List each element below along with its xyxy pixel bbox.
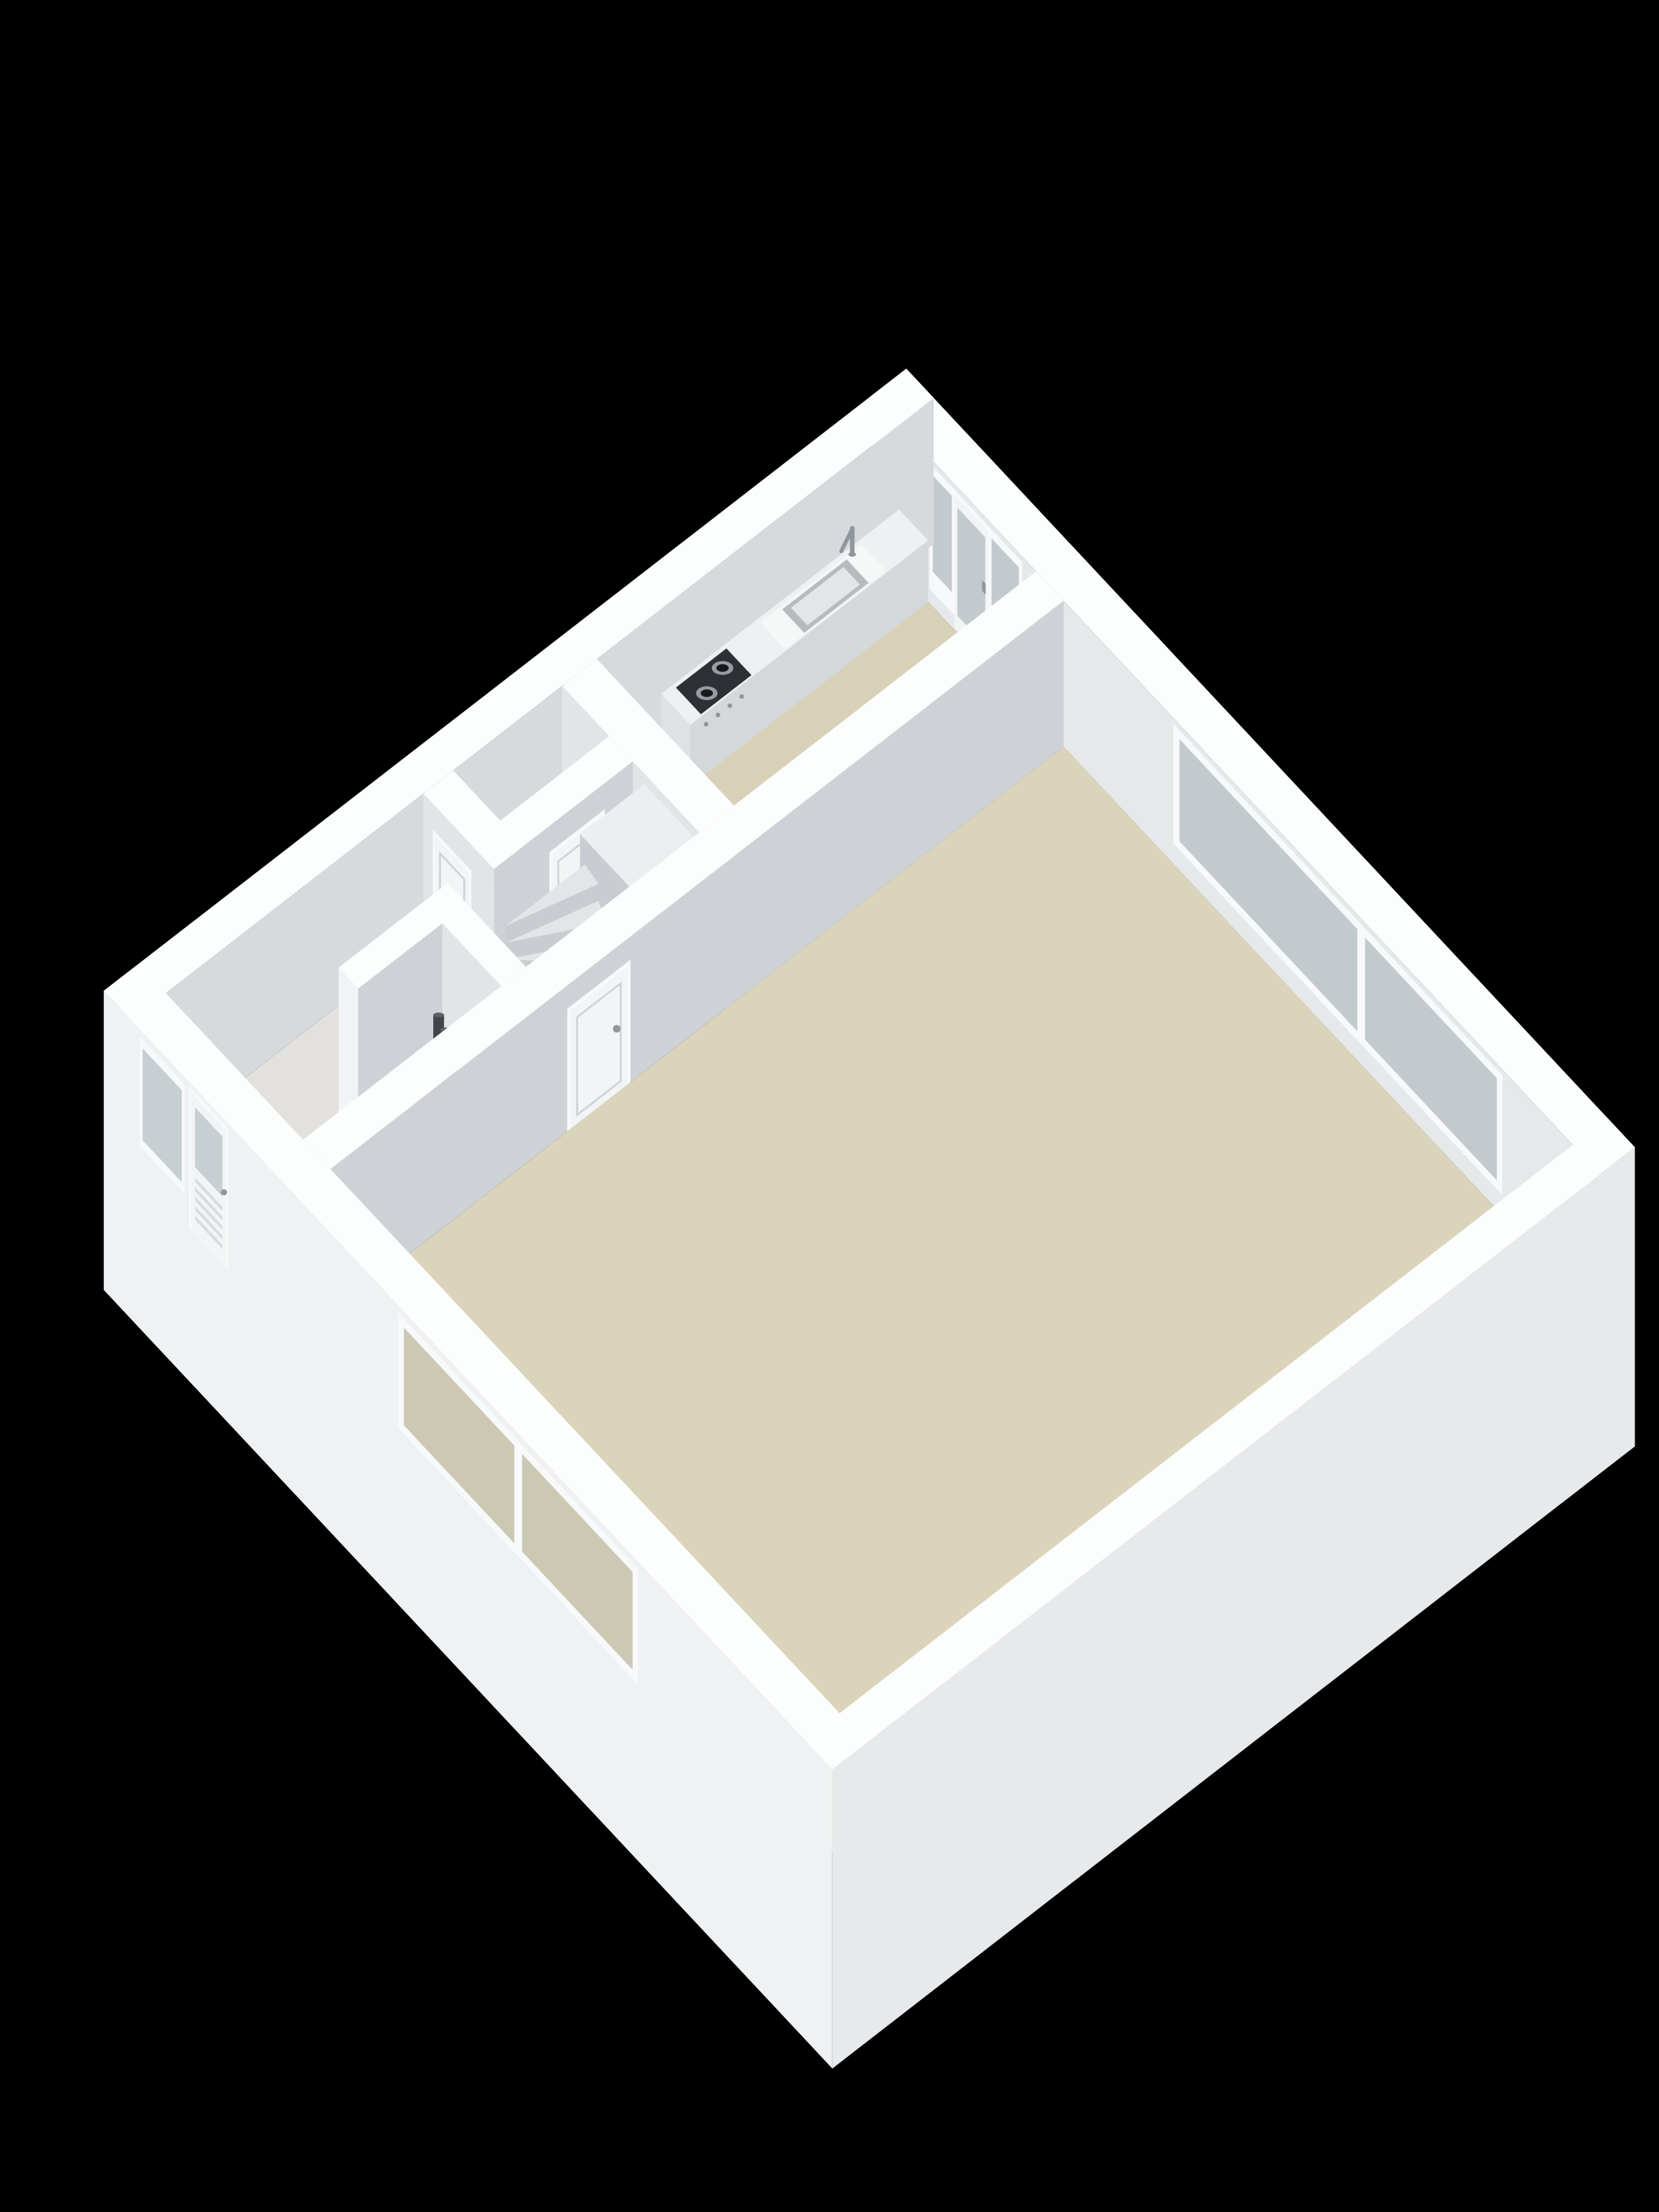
cooktop-knob-2 <box>727 704 732 708</box>
kitchen-faucet-base <box>849 552 856 557</box>
floorplan-3d-render <box>0 0 1659 2212</box>
front-door-handle <box>221 1189 227 1195</box>
cooktop-burner-front-center <box>700 690 713 697</box>
utility-pipe-dark-1-top <box>433 1012 444 1017</box>
living-door-handle <box>613 1025 621 1032</box>
cooktop-knob-4 <box>704 722 708 727</box>
cooktop-knob-3 <box>716 713 720 717</box>
render-stage <box>0 0 1659 2212</box>
balcony-sidelight-left-glass <box>932 475 952 592</box>
page: { "scene": { "background": "#000000", "k… <box>0 0 1659 2212</box>
cooktop-burner-rear-center <box>717 664 729 672</box>
cooktop-knob-1 <box>740 694 744 699</box>
